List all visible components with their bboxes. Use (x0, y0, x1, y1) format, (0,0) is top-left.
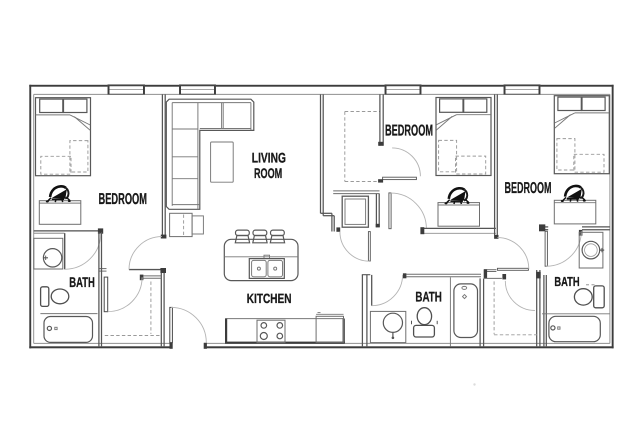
svg-text:BEDROOM: BEDROOM (385, 122, 433, 139)
svg-text:ROOM: ROOM (254, 165, 282, 181)
svg-text:BATH: BATH (69, 274, 95, 290)
svg-text:BATH: BATH (554, 274, 579, 289)
svg-text:BEDROOM: BEDROOM (99, 191, 148, 208)
svg-text:KITCHEN: KITCHEN (247, 291, 292, 306)
svg-text:BEDROOM: BEDROOM (505, 180, 552, 197)
svg-text:BATH: BATH (415, 289, 441, 305)
svg-text:LIVING: LIVING (252, 150, 286, 166)
